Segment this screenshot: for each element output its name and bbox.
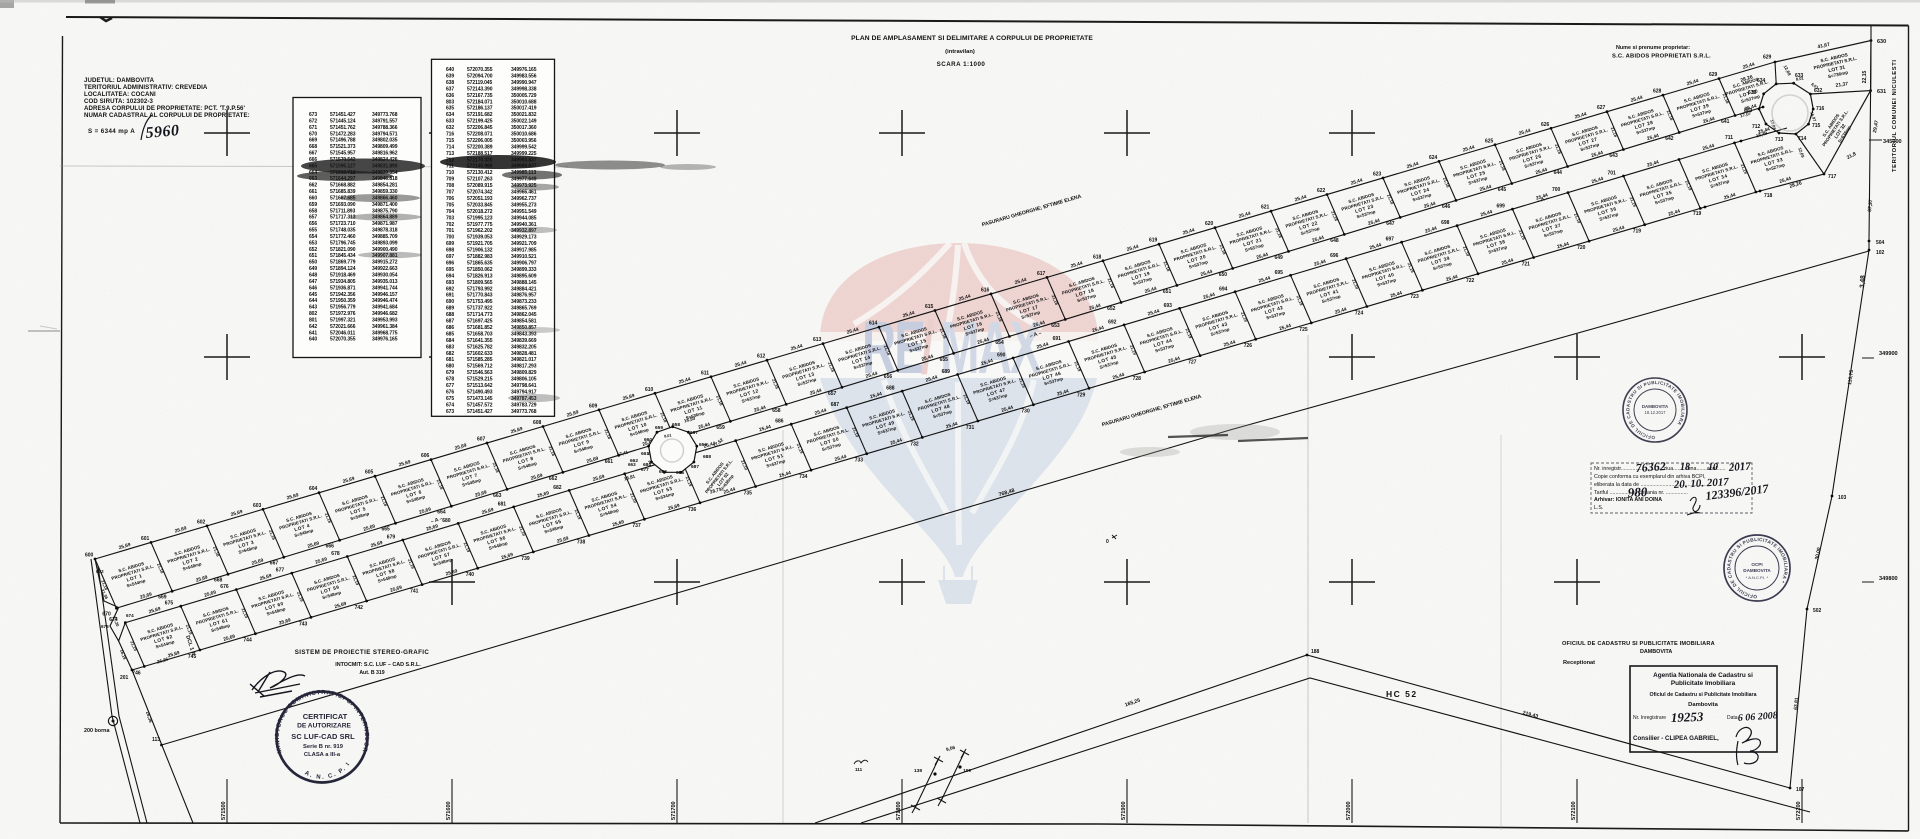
svg-text:605: 605 bbox=[365, 470, 374, 476]
svg-text:571697.425: 571697.425 bbox=[467, 319, 493, 325]
svg-text:571918.469: 571918.469 bbox=[330, 273, 356, 279]
svg-text:PLAN DE AMPLASAMENT SI DELIMIT: PLAN DE AMPLASAMENT SI DELIMITARE A CORP… bbox=[851, 35, 1093, 42]
svg-text:571772.460: 571772.460 bbox=[330, 234, 356, 240]
svg-text:695: 695 bbox=[1275, 270, 1284, 276]
svg-text:652: 652 bbox=[309, 247, 317, 253]
svg-text:DAMBOVITA: DAMBOVITA bbox=[1640, 649, 1672, 655]
svg-text:350022.149: 350022.149 bbox=[511, 119, 537, 125]
svg-text:690: 690 bbox=[997, 353, 1006, 359]
svg-text:571602.633: 571602.633 bbox=[467, 351, 493, 357]
svg-text:623: 623 bbox=[1373, 172, 1382, 178]
svg-text:502: 502 bbox=[1813, 608, 1822, 614]
svg-text:0: 0 bbox=[1106, 539, 1109, 545]
svg-text:572094.700: 572094.700 bbox=[467, 74, 493, 80]
svg-text:572206.845: 572206.845 bbox=[467, 125, 493, 131]
svg-text:642: 642 bbox=[309, 324, 317, 330]
svg-text:678: 678 bbox=[331, 551, 340, 557]
svg-text:349854.581: 349854.581 bbox=[511, 319, 537, 325]
svg-text:571936.871: 571936.871 bbox=[330, 285, 356, 291]
svg-text:572000: 572000 bbox=[1346, 801, 1352, 820]
svg-text:349839.669: 349839.669 bbox=[511, 338, 537, 344]
svg-text:980: 980 bbox=[1627, 484, 1648, 500]
svg-text:111: 111 bbox=[855, 767, 863, 772]
svg-text:648: 648 bbox=[309, 273, 317, 279]
svg-text:686: 686 bbox=[775, 419, 784, 425]
svg-text:Oficiul de Cadastru si Publici: Oficiul de Cadastru si Publicitate Imobi… bbox=[1650, 692, 1757, 698]
svg-text:571977.775: 571977.775 bbox=[467, 222, 493, 228]
svg-text:SC LUF-CAD SRL: SC LUF-CAD SRL bbox=[291, 732, 355, 741]
svg-text:629: 629 bbox=[1709, 72, 1718, 78]
svg-text:571748.035: 571748.035 bbox=[330, 228, 356, 234]
svg-text:637: 637 bbox=[446, 86, 454, 92]
svg-text:652: 652 bbox=[1107, 306, 1116, 312]
svg-text:349828.481: 349828.481 bbox=[511, 351, 537, 357]
svg-text:571753.495: 571753.495 bbox=[467, 299, 493, 305]
svg-text:660: 660 bbox=[644, 437, 652, 443]
svg-text:672: 672 bbox=[96, 569, 104, 574]
svg-text:647: 647 bbox=[1386, 221, 1395, 227]
svg-text:621: 621 bbox=[1261, 205, 1270, 211]
svg-text:675: 675 bbox=[165, 601, 174, 607]
svg-text:660: 660 bbox=[309, 196, 317, 202]
svg-text:631: 631 bbox=[1877, 89, 1886, 95]
svg-text:688: 688 bbox=[446, 312, 454, 318]
svg-text:CLASA a III-a: CLASA a III-a bbox=[304, 752, 341, 758]
svg-text:641: 641 bbox=[309, 330, 317, 336]
svg-text:608: 608 bbox=[533, 420, 542, 426]
svg-text:OFICIUL DE CADASTRU SI PUBLICI: OFICIUL DE CADASTRU SI PUBLICITATE IMOBI… bbox=[1562, 641, 1715, 647]
svg-text:656: 656 bbox=[884, 374, 893, 380]
svg-text:699: 699 bbox=[446, 241, 454, 247]
svg-text:690: 690 bbox=[446, 299, 454, 305]
svg-text:350010.688: 350010.688 bbox=[511, 99, 537, 105]
svg-text:349885.709: 349885.709 bbox=[372, 234, 398, 240]
svg-text:648: 648 bbox=[1330, 238, 1339, 244]
svg-text:349998.338: 349998.338 bbox=[511, 86, 537, 92]
svg-text:571585.285: 571585.285 bbox=[467, 357, 493, 363]
svg-text:572018.272: 572018.272 bbox=[467, 209, 493, 215]
svg-text:571956.779: 571956.779 bbox=[330, 305, 356, 311]
svg-text:5960: 5960 bbox=[145, 122, 180, 142]
svg-text:349976.165: 349976.165 bbox=[372, 337, 398, 343]
svg-text:DAMBOVITA: DAMBOVITA bbox=[1743, 568, 1771, 573]
svg-text:659: 659 bbox=[309, 202, 317, 208]
svg-text:349962.737: 349962.737 bbox=[511, 196, 537, 202]
svg-text:645: 645 bbox=[309, 292, 317, 298]
svg-text:199: 199 bbox=[963, 768, 971, 774]
svg-text:707: 707 bbox=[446, 190, 454, 196]
svg-text:692: 692 bbox=[1108, 319, 1117, 325]
svg-text:704: 704 bbox=[446, 209, 454, 215]
svg-text:571826.913: 571826.913 bbox=[467, 273, 493, 279]
svg-text:668: 668 bbox=[309, 144, 317, 150]
svg-text:571500: 571500 bbox=[221, 801, 227, 820]
svg-text:NUMAR CADASTRAL AL CORPULUI DE: NUMAR CADASTRAL AL CORPULUI DE PROPRIETA… bbox=[84, 112, 250, 119]
svg-text:681: 681 bbox=[498, 501, 507, 507]
svg-text:S = 6344 mp A: S = 6344 mp A bbox=[88, 128, 135, 135]
svg-text:727: 727 bbox=[1188, 360, 1197, 366]
svg-text:22,15: 22,15 bbox=[1862, 71, 1868, 84]
svg-text:349888.145: 349888.145 bbox=[511, 280, 537, 286]
svg-text:689: 689 bbox=[446, 306, 454, 312]
svg-text:DE AUTORIZARE: DE AUTORIZARE bbox=[297, 723, 351, 730]
svg-text:730: 730 bbox=[1021, 409, 1030, 415]
svg-text:349946.682: 349946.682 bbox=[372, 311, 398, 317]
svg-text:625: 625 bbox=[1485, 138, 1494, 144]
svg-text:571451.762: 571451.762 bbox=[330, 125, 356, 131]
svg-text:740: 740 bbox=[466, 572, 475, 578]
svg-text:713: 713 bbox=[1775, 137, 1784, 143]
svg-text:659: 659 bbox=[716, 425, 725, 431]
svg-text:349929.173: 349929.173 bbox=[511, 235, 537, 241]
svg-text:571451.427: 571451.427 bbox=[467, 409, 493, 415]
svg-text:349806.105: 349806.105 bbox=[511, 377, 537, 383]
svg-text:688: 688 bbox=[886, 386, 895, 392]
svg-text:634: 634 bbox=[446, 112, 454, 118]
svg-text:691: 691 bbox=[446, 293, 454, 299]
svg-text:571950.359: 571950.359 bbox=[330, 298, 356, 304]
svg-text:633: 633 bbox=[446, 119, 454, 125]
svg-text:671: 671 bbox=[309, 125, 317, 131]
svg-text:Nume si prenume proprietar:: Nume si prenume proprietar: bbox=[1616, 45, 1690, 51]
svg-text:715: 715 bbox=[446, 138, 454, 144]
svg-text:JUDETUL: DAMBOVITA: JUDETUL: DAMBOVITA bbox=[84, 77, 155, 84]
svg-text:673: 673 bbox=[309, 112, 317, 118]
svg-text:572191.682: 572191.682 bbox=[467, 112, 493, 118]
svg-text:349915.272: 349915.272 bbox=[372, 260, 398, 266]
svg-text:600: 600 bbox=[85, 553, 94, 559]
svg-text:COD SIRUTA: 102302-3: COD SIRUTA: 102302-3 bbox=[84, 98, 153, 105]
svg-text:349878.318: 349878.318 bbox=[372, 228, 398, 234]
svg-text:349794.571: 349794.571 bbox=[372, 131, 398, 137]
svg-text:716: 716 bbox=[1816, 106, 1825, 112]
svg-text:571869.779: 571869.779 bbox=[330, 260, 356, 266]
svg-text:606: 606 bbox=[421, 453, 430, 459]
svg-text:635: 635 bbox=[446, 106, 454, 112]
svg-text:613: 613 bbox=[813, 337, 822, 343]
svg-text:708: 708 bbox=[446, 183, 454, 189]
svg-text:694: 694 bbox=[1219, 286, 1228, 292]
svg-text:TERITORIUL ADMINISTRATIV: CREV: TERITORIUL ADMINISTRATIV: CREVEDIA bbox=[84, 84, 208, 91]
svg-text:654: 654 bbox=[309, 234, 317, 240]
svg-text:18: 18 bbox=[1680, 462, 1690, 473]
svg-text:655: 655 bbox=[309, 228, 317, 234]
svg-text:349941.744: 349941.744 bbox=[372, 285, 398, 291]
svg-text:349900: 349900 bbox=[1879, 351, 1898, 357]
svg-text:349944.085: 349944.085 bbox=[511, 215, 537, 221]
svg-text:571737.922: 571737.922 bbox=[467, 306, 493, 312]
svg-text:624: 624 bbox=[1429, 155, 1438, 161]
svg-text:609: 609 bbox=[589, 403, 598, 409]
svg-text:571681.852: 571681.852 bbox=[467, 325, 493, 331]
svg-text:3,48: 3,48 bbox=[1859, 275, 1867, 288]
svg-text:SCARA 1:1000: SCARA 1:1000 bbox=[937, 61, 986, 68]
svg-text:674: 674 bbox=[446, 402, 454, 408]
svg-text:687: 687 bbox=[831, 402, 840, 408]
svg-text:349951.549: 349951.549 bbox=[511, 209, 537, 215]
svg-text:103: 103 bbox=[1838, 495, 1847, 501]
svg-text:711: 711 bbox=[1725, 135, 1733, 141]
svg-text:349999.542: 349999.542 bbox=[511, 144, 537, 150]
svg-text:HC 52: HC 52 bbox=[1386, 689, 1418, 699]
svg-text:681: 681 bbox=[446, 357, 454, 363]
svg-text:571600: 571600 bbox=[446, 801, 452, 820]
svg-text:680: 680 bbox=[442, 518, 451, 524]
svg-text:350003.956: 350003.956 bbox=[511, 138, 537, 144]
svg-text:350021.832: 350021.832 bbox=[511, 112, 537, 118]
svg-text:698: 698 bbox=[1441, 220, 1450, 226]
svg-text:642: 642 bbox=[1665, 136, 1674, 142]
svg-text:571723.710: 571723.710 bbox=[330, 221, 356, 227]
svg-text:733: 733 bbox=[855, 458, 864, 464]
svg-text:693: 693 bbox=[1164, 303, 1173, 309]
svg-text:684: 684 bbox=[643, 462, 651, 468]
svg-text:649: 649 bbox=[309, 266, 317, 272]
svg-text:OCPI: OCPI bbox=[1751, 562, 1762, 567]
svg-text:617: 617 bbox=[1037, 271, 1046, 277]
svg-text:571714.773: 571714.773 bbox=[467, 312, 493, 318]
svg-text:654: 654 bbox=[995, 340, 1004, 346]
svg-text:572184.071: 572184.071 bbox=[467, 99, 493, 105]
svg-text:107: 107 bbox=[1796, 787, 1805, 793]
svg-text:349854.281: 349854.281 bbox=[372, 183, 398, 189]
svg-text:701: 701 bbox=[1608, 171, 1617, 177]
svg-text:Consilier - CLIPEA GABRIEL,: Consilier - CLIPEA GABRIEL, bbox=[1633, 735, 1719, 742]
svg-text:610: 610 bbox=[645, 387, 654, 393]
svg-text:572143.390: 572143.390 bbox=[467, 86, 493, 92]
svg-text:19253: 19253 bbox=[1671, 709, 1705, 725]
svg-text:619: 619 bbox=[1149, 238, 1158, 244]
svg-text:349946.474: 349946.474 bbox=[372, 298, 398, 304]
svg-text:571770.843: 571770.843 bbox=[467, 293, 493, 299]
svg-text:653: 653 bbox=[309, 240, 317, 246]
svg-text:349809.829: 349809.829 bbox=[511, 370, 537, 376]
svg-text:685: 685 bbox=[659, 469, 667, 475]
svg-text:715: 715 bbox=[1812, 123, 1821, 129]
svg-text:698: 698 bbox=[446, 248, 454, 254]
svg-text:349821.017: 349821.017 bbox=[511, 357, 537, 363]
svg-text:571445.124: 571445.124 bbox=[330, 118, 356, 124]
svg-text:668: 668 bbox=[214, 578, 223, 584]
svg-text:674: 674 bbox=[126, 613, 134, 618]
svg-text:682: 682 bbox=[446, 351, 454, 357]
svg-text:686: 686 bbox=[446, 325, 454, 331]
svg-text:706: 706 bbox=[446, 196, 454, 202]
svg-text:571472.283: 571472.283 bbox=[330, 131, 356, 137]
svg-text:735: 735 bbox=[744, 491, 753, 497]
svg-text:349935.013: 349935.013 bbox=[372, 279, 398, 285]
svg-text:702: 702 bbox=[446, 222, 454, 228]
svg-text:571521.373: 571521.373 bbox=[330, 144, 356, 150]
svg-text:571906.132: 571906.132 bbox=[467, 248, 493, 254]
svg-text:694: 694 bbox=[446, 273, 454, 279]
svg-text:571942.356: 571942.356 bbox=[330, 292, 356, 298]
svg-text:651: 651 bbox=[309, 253, 317, 259]
svg-text:656: 656 bbox=[309, 221, 317, 227]
svg-text:571451.427: 571451.427 bbox=[330, 112, 356, 118]
svg-text:Dambovita: Dambovita bbox=[1688, 702, 1718, 708]
svg-text:349876.957: 349876.957 bbox=[511, 293, 537, 299]
svg-text:349922.663: 349922.663 bbox=[372, 266, 398, 272]
svg-text:S.C. ABIDOS PROPRIETATI S.R.L.: S.C. ABIDOS PROPRIETATI S.R.L. bbox=[1612, 54, 1711, 60]
svg-text:571513.642: 571513.642 bbox=[467, 383, 493, 389]
svg-text:571693.090: 571693.090 bbox=[330, 202, 356, 208]
svg-text:571457.572: 571457.572 bbox=[467, 402, 493, 408]
svg-text:572206.005: 572206.005 bbox=[467, 138, 493, 144]
svg-text:728: 728 bbox=[1133, 376, 1142, 382]
svg-text:349783.729: 349783.729 bbox=[511, 402, 537, 408]
svg-text:10: 10 bbox=[1708, 462, 1718, 473]
svg-text:699: 699 bbox=[1497, 204, 1506, 210]
svg-text:629: 629 bbox=[1763, 55, 1772, 61]
svg-text:725: 725 bbox=[1299, 327, 1308, 333]
svg-text:604: 604 bbox=[309, 486, 318, 492]
svg-text:Receptionat: Receptionat bbox=[1563, 660, 1595, 666]
svg-text:349862.045: 349862.045 bbox=[511, 312, 537, 318]
svg-text:(intravilan): (intravilan) bbox=[945, 49, 975, 55]
svg-text:349941.684: 349941.684 bbox=[372, 305, 398, 311]
svg-text:620: 620 bbox=[1205, 221, 1214, 227]
svg-text:571934.805: 571934.805 bbox=[330, 279, 356, 285]
svg-text:691: 691 bbox=[1053, 336, 1062, 342]
svg-text:572051.193: 572051.193 bbox=[467, 196, 493, 202]
svg-text:650: 650 bbox=[309, 260, 317, 266]
svg-text:710: 710 bbox=[446, 170, 454, 176]
svg-text:349921.709: 349921.709 bbox=[511, 241, 537, 247]
svg-text:661: 661 bbox=[605, 459, 614, 465]
svg-text:571796.745: 571796.745 bbox=[330, 240, 356, 246]
svg-text:802: 802 bbox=[309, 311, 317, 317]
svg-text:714: 714 bbox=[446, 144, 454, 150]
svg-text:571658.703: 571658.703 bbox=[467, 331, 493, 337]
svg-text:741: 741 bbox=[410, 589, 419, 595]
svg-text:716: 716 bbox=[446, 132, 454, 138]
svg-text:SISTEM DE PROIECTIE STEREO-GRA: SISTEM DE PROIECTIE STEREO-GRAFIC bbox=[295, 649, 430, 656]
svg-text:Nr. Inregistrare: Nr. Inregistrare bbox=[1633, 715, 1666, 721]
svg-text:571668.882: 571668.882 bbox=[330, 183, 356, 189]
svg-text:571972.976: 571972.976 bbox=[330, 311, 356, 317]
svg-text:677: 677 bbox=[276, 568, 285, 574]
svg-text:349788.366: 349788.366 bbox=[372, 125, 398, 131]
svg-text:655: 655 bbox=[940, 357, 949, 363]
svg-text:349865.769: 349865.769 bbox=[511, 306, 537, 312]
svg-text:113: 113 bbox=[152, 737, 160, 743]
svg-text:349910.521: 349910.521 bbox=[511, 254, 537, 260]
svg-text:662: 662 bbox=[549, 476, 558, 482]
svg-text:571809.565: 571809.565 bbox=[467, 280, 493, 286]
svg-text:571569.712: 571569.712 bbox=[467, 364, 493, 370]
svg-text:349906.797: 349906.797 bbox=[511, 261, 537, 267]
svg-text:672: 672 bbox=[309, 118, 317, 124]
svg-text:703: 703 bbox=[446, 215, 454, 221]
svg-text:618: 618 bbox=[1093, 254, 1102, 260]
svg-text:732: 732 bbox=[910, 441, 919, 447]
svg-text:349817.293: 349817.293 bbox=[511, 364, 537, 370]
svg-text:696: 696 bbox=[446, 261, 454, 267]
svg-text:Aut. B 319: Aut. B 319 bbox=[359, 670, 384, 676]
svg-text:616: 616 bbox=[981, 287, 990, 293]
svg-text:L.S.: L.S. bbox=[1594, 505, 1603, 511]
svg-text:Publicitate Imobiliara: Publicitate Imobiliara bbox=[1671, 680, 1736, 687]
svg-text:665: 665 bbox=[382, 527, 391, 533]
svg-text:76362: 76362 bbox=[1635, 459, 1666, 475]
svg-text:201: 201 bbox=[120, 675, 129, 681]
svg-text:687: 687 bbox=[691, 464, 699, 470]
svg-text:349917.985: 349917.985 bbox=[511, 248, 537, 254]
svg-text:571865.635: 571865.635 bbox=[467, 261, 493, 267]
svg-text:628: 628 bbox=[1653, 89, 1662, 95]
svg-text:688: 688 bbox=[703, 454, 711, 460]
svg-text:714: 714 bbox=[1798, 136, 1807, 142]
svg-text:349899.333: 349899.333 bbox=[511, 267, 537, 273]
svg-text:653: 653 bbox=[1051, 323, 1060, 329]
svg-text:572089.915: 572089.915 bbox=[467, 183, 493, 189]
svg-text:571793.992: 571793.992 bbox=[467, 286, 493, 292]
svg-text:18.12.2017: 18.12.2017 bbox=[1645, 410, 1667, 415]
svg-text:729: 729 bbox=[1077, 392, 1086, 398]
svg-text:675: 675 bbox=[446, 396, 454, 402]
svg-text:685: 685 bbox=[446, 331, 454, 337]
svg-text:571473.145: 571473.145 bbox=[467, 396, 493, 402]
svg-text:571496.788: 571496.788 bbox=[330, 138, 356, 144]
svg-text:571962.202: 571962.202 bbox=[467, 228, 493, 234]
svg-text:697: 697 bbox=[446, 254, 454, 260]
svg-text:571625.782: 571625.782 bbox=[467, 344, 493, 350]
svg-text:349871.400: 349871.400 bbox=[372, 202, 398, 208]
svg-text:349800: 349800 bbox=[1879, 576, 1898, 582]
svg-text:683: 683 bbox=[446, 344, 454, 350]
svg-text:350005.729: 350005.729 bbox=[511, 93, 537, 99]
svg-text:571850.062: 571850.062 bbox=[467, 267, 493, 273]
svg-text:651: 651 bbox=[1163, 289, 1172, 295]
svg-text:705: 705 bbox=[446, 202, 454, 208]
svg-text:Data: Data bbox=[1727, 715, 1738, 721]
svg-text:349809.499: 349809.499 bbox=[372, 144, 398, 150]
svg-text:720: 720 bbox=[1577, 245, 1586, 251]
svg-text:657: 657 bbox=[828, 391, 837, 397]
svg-text:571995.123: 571995.123 bbox=[467, 215, 493, 221]
svg-text:656: 656 bbox=[699, 442, 707, 448]
svg-text:737: 737 bbox=[632, 523, 641, 529]
svg-text:571711.893: 571711.893 bbox=[330, 208, 355, 214]
svg-text:350017.419: 350017.419 bbox=[511, 106, 537, 112]
svg-text:349893.099: 349893.099 bbox=[372, 240, 398, 246]
svg-text:571700: 571700 bbox=[671, 801, 677, 820]
svg-text:601: 601 bbox=[141, 536, 150, 542]
svg-text:* A.N.C.P.I. *: * A.N.C.P.I. * bbox=[1746, 575, 1769, 580]
svg-text:676: 676 bbox=[446, 390, 454, 396]
svg-text:743: 743 bbox=[299, 621, 308, 627]
svg-text:349832.205: 349832.205 bbox=[511, 344, 537, 350]
svg-text:LOCALITATEA: COCANI: LOCALITATEA: COCANI bbox=[84, 91, 156, 98]
svg-text:693: 693 bbox=[446, 280, 454, 286]
svg-text:607: 607 bbox=[477, 437, 486, 443]
svg-text:349875.790: 349875.790 bbox=[372, 208, 398, 214]
svg-text:658: 658 bbox=[309, 208, 317, 214]
svg-text:349873.233: 349873.233 bbox=[511, 299, 537, 305]
svg-text:697: 697 bbox=[1386, 237, 1395, 243]
svg-text:687: 687 bbox=[446, 319, 454, 325]
svg-text:349798.641: 349798.641 bbox=[511, 383, 537, 389]
svg-text:572046.011: 572046.011 bbox=[330, 330, 355, 336]
svg-text:349930.054: 349930.054 bbox=[372, 273, 398, 279]
svg-text:572070.355: 572070.355 bbox=[467, 67, 493, 73]
svg-text:644: 644 bbox=[1554, 170, 1563, 176]
svg-text:700: 700 bbox=[1552, 187, 1561, 193]
svg-text:721: 721 bbox=[1522, 262, 1531, 268]
svg-text:572107.263: 572107.263 bbox=[467, 177, 493, 183]
svg-text:349816.962: 349816.962 bbox=[372, 151, 398, 157]
